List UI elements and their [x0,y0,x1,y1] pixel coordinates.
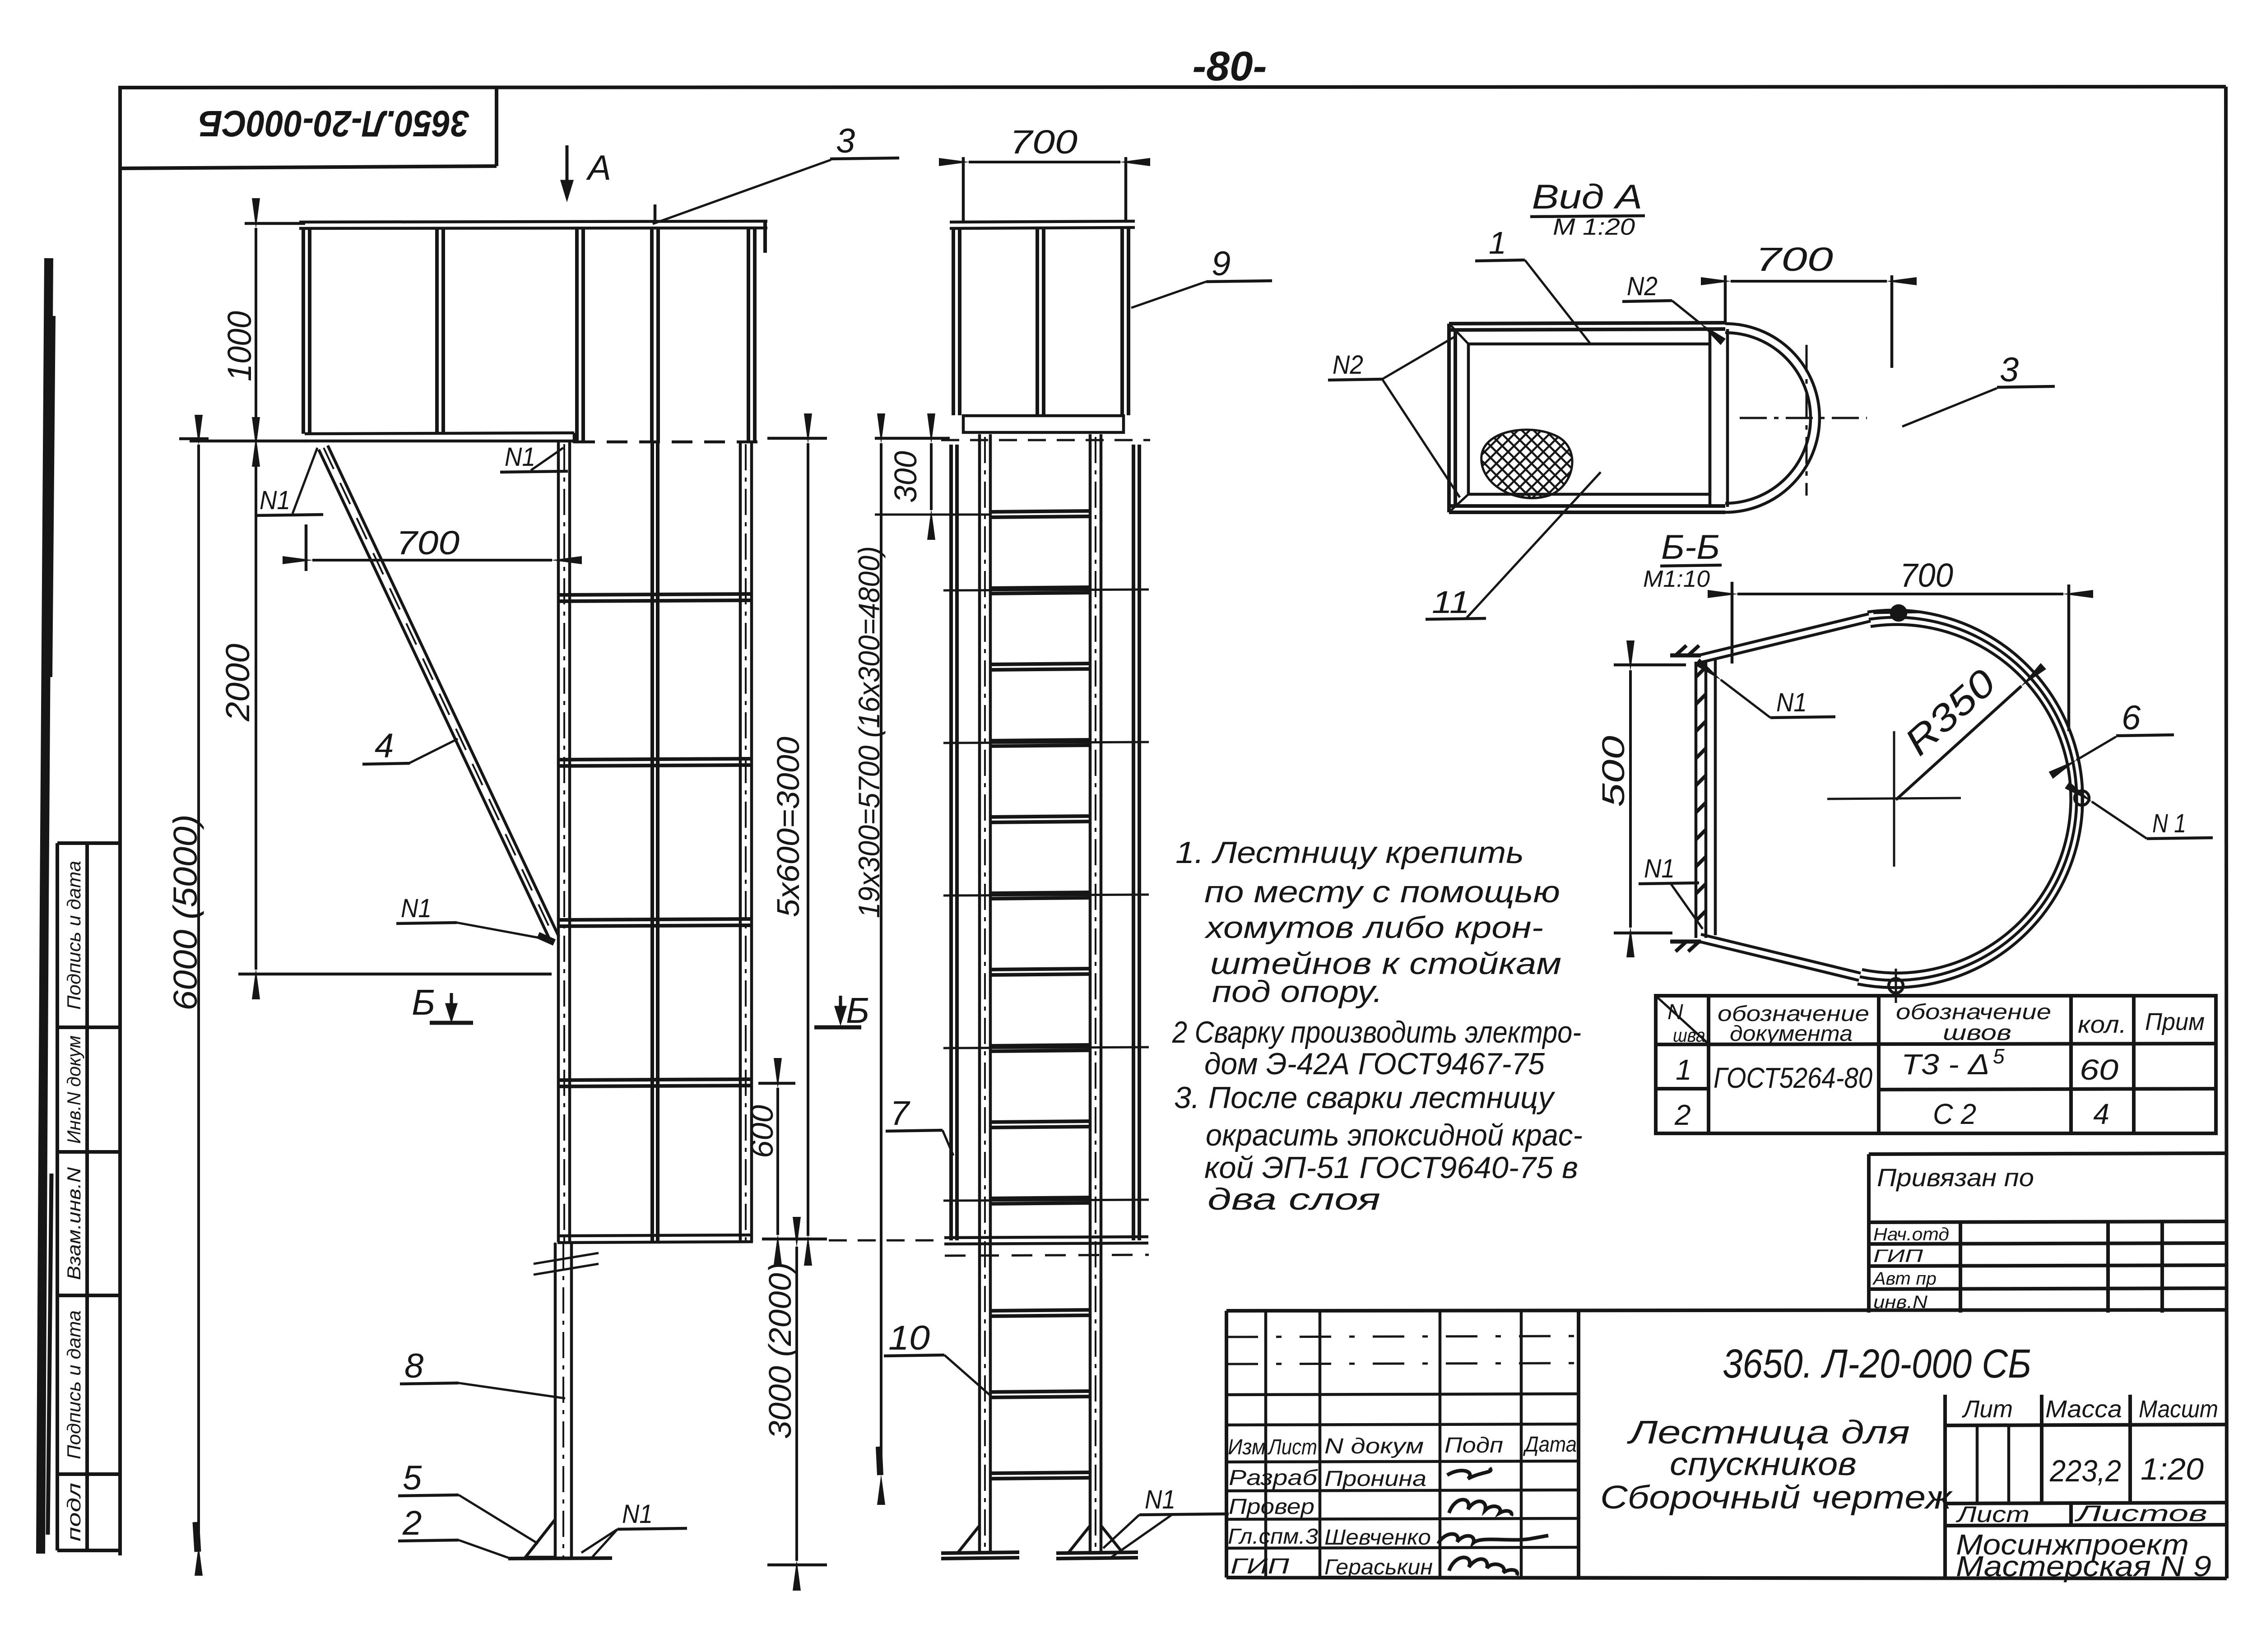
svg-text:шва: шва [1673,1025,1705,1046]
svg-text:8: 8 [404,1347,423,1385]
svg-text:Мастерская N 9: Мастерская N 9 [1956,1550,2211,1582]
svg-text:дом Э-42А ГОСТ9467-75: дом Э-42А ГОСТ9467-75 [1204,1047,1545,1081]
svg-text:Изм: Изм [1228,1435,1266,1459]
svg-text:2: 2 [402,1504,422,1542]
svg-text:Вид А: Вид А [1532,178,1643,216]
svg-text:Лист: Лист [1267,1435,1317,1459]
svg-text:Подпись и дата: Подпись и дата [63,1310,84,1459]
svg-text:1: 1 [1676,1053,1692,1086]
svg-text:Подпись и дата: Подпись и дата [63,861,84,1010]
svg-text:300: 300 [888,451,923,503]
svg-text:700: 700 [1755,241,1833,278]
svg-text:по месту с помощью: по месту с помощью [1204,875,1560,909]
svg-text:700: 700 [1900,557,1953,594]
svg-text:Лист: Лист [1955,1502,2029,1527]
svg-text:1: 1 [1489,225,1506,260]
svg-text:спускников: спускников [1670,1446,1857,1482]
svg-text:М1:10: М1:10 [1643,566,1710,592]
svg-text:19x300=5700 (16x300=4800): 19x300=5700 (16x300=4800) [852,546,886,918]
svg-text:Разраб: Разраб [1229,1466,1318,1490]
svg-text:Т3 - Δ: Т3 - Δ [1901,1048,1990,1081]
svg-text:9: 9 [1212,245,1231,283]
svg-text:Пронина: Пронина [1324,1467,1426,1491]
svg-text:Масса: Масса [2045,1396,2122,1423]
svg-text:4: 4 [2093,1098,2109,1130]
svg-text:3: 3 [2000,351,2019,389]
svg-text:223,2: 223,2 [2049,1454,2121,1488]
svg-text:под опору.: под опору. [1212,974,1383,1009]
svg-text:1:20: 1:20 [2141,1452,2204,1486]
svg-text:Привязан по: Привязан по [1877,1163,2034,1192]
svg-text:11: 11 [1432,585,1470,620]
svg-text:два слоя: два слоя [1207,1182,1380,1216]
svg-text:кол.: кол. [2078,1011,2127,1038]
svg-text:N1: N1 [401,894,432,923]
svg-text:швов: швов [1943,1021,2011,1045]
svg-text:3650. Л-20-000 СБ: 3650. Л-20-000 СБ [1723,1341,2031,1387]
svg-text:Лестница для: Лестница для [1627,1415,1910,1451]
svg-text:кой ЭП-51 ГОСТ9640-75 в: кой ЭП-51 ГОСТ9640-75 в [1204,1151,1578,1185]
svg-text:-80-: -80- [1193,43,1267,89]
svg-text:Гл.спм.3: Гл.спм.3 [1228,1525,1318,1549]
svg-text:4: 4 [375,727,394,765]
svg-text:ГИП: ГИП [1873,1246,1923,1266]
svg-text:Листов: Листов [2074,1501,2207,1526]
svg-text:N1: N1 [1644,854,1675,883]
svg-text:3650.Л-20-000СБ: 3650.Л-20-000СБ [199,103,469,144]
svg-text:Инв.N докум: Инв.N докум [63,1035,84,1144]
svg-text:6: 6 [2122,699,2141,737]
svg-text:Прим: Прим [2145,1008,2205,1035]
svg-text:Б: Б [412,982,435,1022]
svg-text:Провер: Провер [1229,1495,1314,1519]
svg-text:N1: N1 [622,1499,653,1529]
svg-text:2 Сварку производить электро-: 2 Сварку производить электро- [1172,1015,1581,1049]
svg-text:5x600=3000: 5x600=3000 [771,737,806,917]
svg-text:5: 5 [403,1459,422,1497]
svg-text:10: 10 [888,1319,930,1357]
svg-text:окрасить эпоксидной крас-: окрасить эпоксидной крас- [1206,1118,1583,1152]
svg-text:Сборочный чертеж: Сборочный чертеж [1600,1480,1953,1516]
svg-text:N1: N1 [1776,688,1807,717]
svg-text:Нач.отд: Нач.отд [1873,1225,1949,1244]
svg-text:Взам.инв.N: Взам.инв.N [63,1167,84,1280]
svg-text:1000: 1000 [221,311,258,381]
svg-text:А: А [586,148,611,187]
svg-text:М 1:20: М 1:20 [1553,214,1635,240]
svg-text:N2: N2 [1627,272,1658,301]
svg-text:N докум: N докум [1324,1434,1424,1458]
svg-text:3: 3 [836,122,855,160]
svg-text:N2: N2 [1333,350,1363,380]
svg-text:N: N [1667,1000,1683,1024]
svg-text:700: 700 [396,524,460,561]
svg-text:ГИП: ГИП [1231,1555,1289,1578]
svg-text:Подп: Подп [1444,1434,1503,1457]
svg-text:7: 7 [890,1094,910,1132]
svg-text:600: 600 [744,1105,780,1158]
svg-text:Лит: Лит [1962,1396,2013,1423]
svg-text:500: 500 [1596,736,1631,807]
svg-text:5: 5 [1993,1044,2005,1068]
svg-text:подл: подл [63,1483,84,1541]
svg-text:700: 700 [1010,123,1077,161]
svg-text:Масшт: Масшт [2139,1396,2218,1423]
svg-text:Гераськин: Гераськин [1324,1555,1433,1579]
svg-text:документа: документа [1730,1022,1853,1046]
svg-text:Б-Б: Б-Б [1661,528,1720,566]
svg-text:хомутов либо крон-: хомутов либо крон- [1204,910,1543,945]
svg-text:2000: 2000 [219,644,256,722]
svg-text:N1: N1 [260,486,290,515]
svg-text:2: 2 [1674,1099,1691,1131]
svg-text:Авт пр: Авт пр [1872,1269,1937,1289]
svg-text:N1: N1 [505,442,535,472]
svg-text:3000 (2000): 3000 (2000) [762,1262,798,1439]
svg-text:1. Лестницу крепить: 1. Лестницу крепить [1175,835,1524,870]
svg-text:60: 60 [2080,1053,2118,1086]
svg-text:ГОСТ5264-80: ГОСТ5264-80 [1714,1062,1872,1094]
svg-text:С 2: С 2 [1933,1098,1976,1130]
svg-text:Б: Б [846,990,869,1030]
svg-text:N 1: N 1 [2152,809,2186,838]
svg-text:N1: N1 [1145,1485,1175,1514]
svg-text:Дата: Дата [1523,1433,1577,1457]
svg-text:Шевченко: Шевченко [1324,1526,1431,1550]
svg-text:3. После сварки лестницу: 3. После сварки лестницу [1174,1081,1556,1115]
svg-text:6000 (5000): 6000 (5000) [167,814,204,1011]
